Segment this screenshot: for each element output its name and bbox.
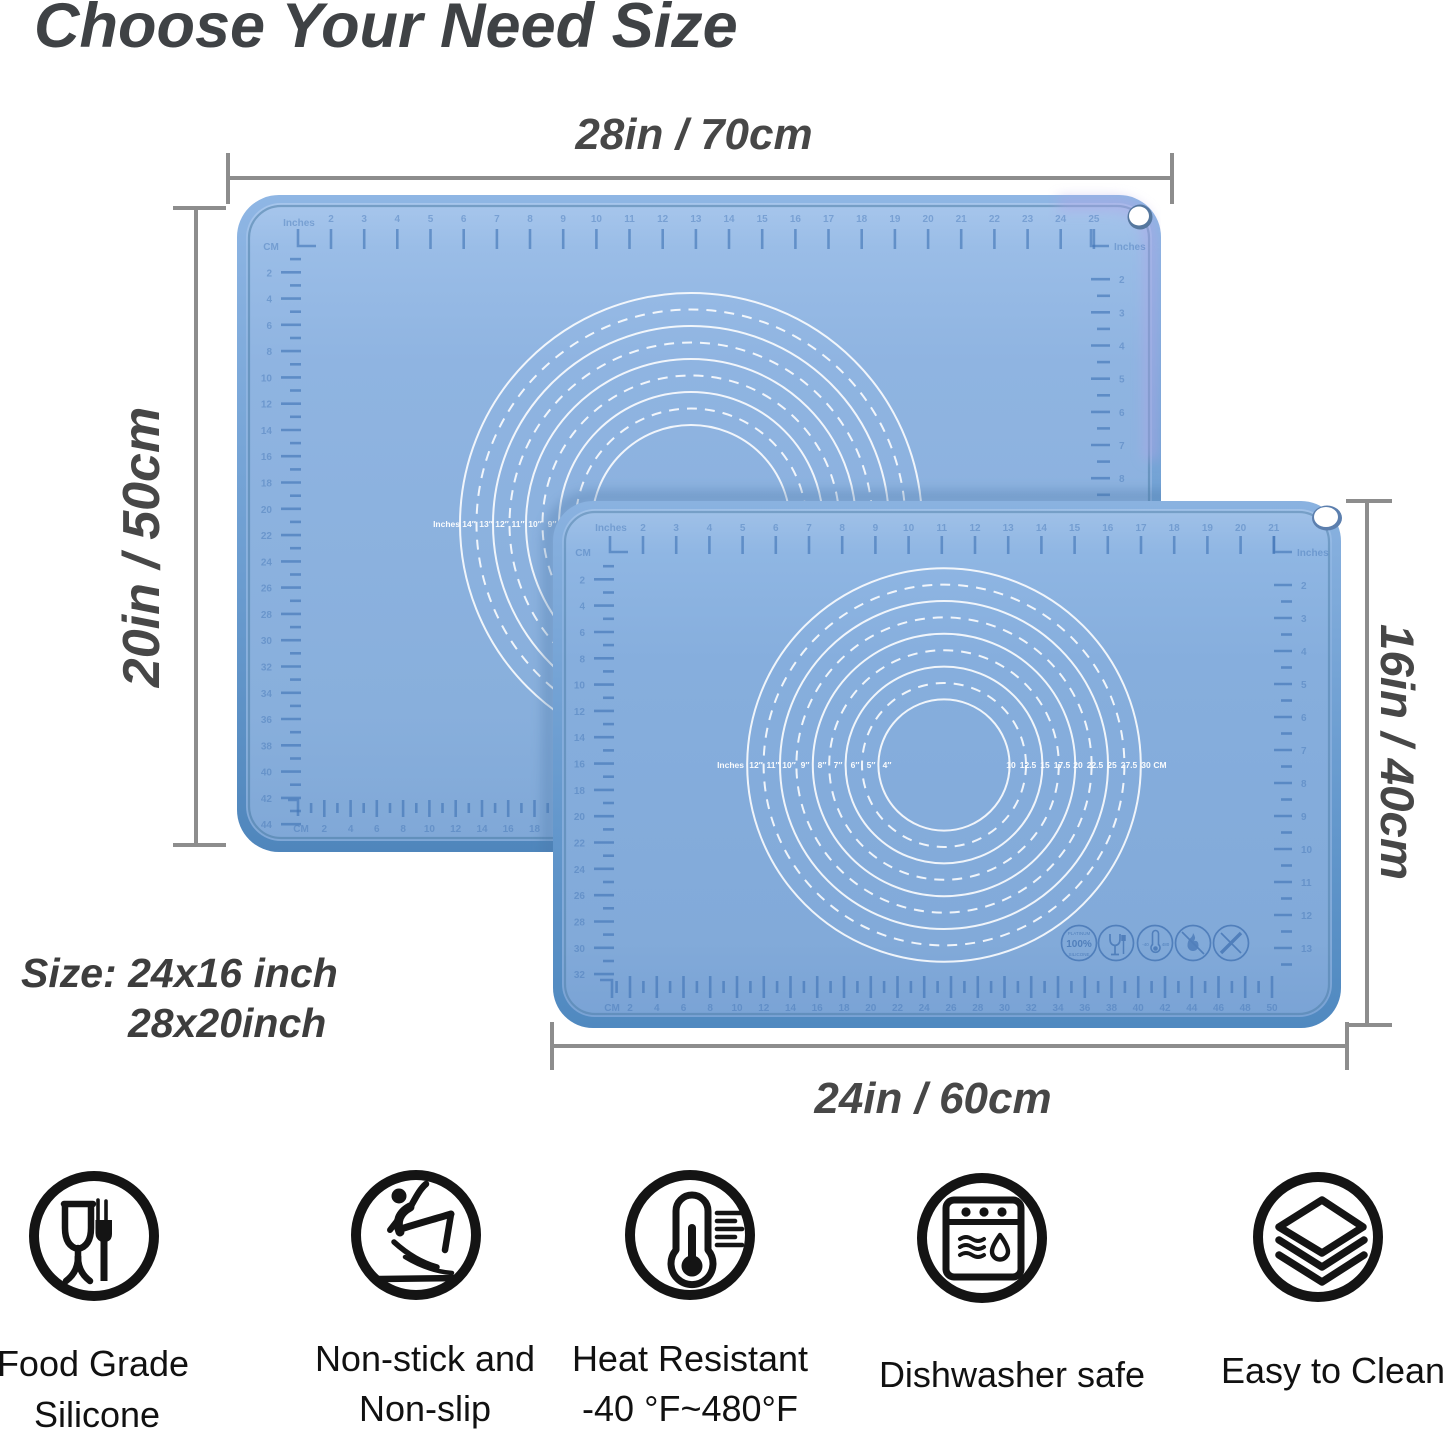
svg-text:5: 5 [428, 214, 434, 225]
svg-text:16: 16 [1102, 523, 1114, 534]
svg-text:Inches: Inches [283, 218, 315, 229]
svg-text:24: 24 [919, 1003, 931, 1014]
svg-text:16: 16 [812, 1003, 824, 1014]
svg-text:10″: 10″ [782, 760, 796, 770]
svg-text:12: 12 [574, 707, 586, 718]
svg-text:11: 11 [937, 523, 948, 534]
svg-text:2: 2 [322, 824, 328, 835]
svg-text:23: 23 [1022, 214, 1034, 225]
svg-text:4: 4 [1119, 342, 1125, 353]
svg-text:8: 8 [707, 1003, 713, 1014]
svg-text:10″: 10″ [528, 519, 542, 529]
svg-text:22.5: 22.5 [1087, 760, 1104, 770]
svg-text:26: 26 [574, 891, 586, 902]
svg-text:16: 16 [261, 452, 273, 463]
svg-text:28in / 70cm: 28in / 70cm [574, 110, 812, 159]
svg-text:18: 18 [261, 479, 273, 490]
svg-text:12″: 12″ [495, 519, 509, 529]
svg-text:8″: 8″ [818, 760, 827, 770]
svg-text:7: 7 [806, 523, 812, 534]
svg-text:22: 22 [574, 839, 586, 850]
svg-text:18: 18 [856, 214, 868, 225]
svg-text:16: 16 [790, 214, 802, 225]
svg-text:4: 4 [579, 602, 585, 613]
svg-text:2: 2 [328, 214, 334, 225]
svg-text:3: 3 [673, 523, 679, 534]
svg-text:12″: 12″ [749, 760, 763, 770]
svg-text:38: 38 [261, 741, 273, 752]
svg-text:100%: 100% [1066, 939, 1092, 950]
svg-text:12: 12 [969, 523, 981, 534]
svg-text:7: 7 [1119, 441, 1125, 452]
svg-text:25: 25 [1088, 214, 1100, 225]
svg-text:30: 30 [261, 636, 273, 647]
svg-text:15: 15 [757, 214, 769, 225]
svg-text:CM: CM [575, 548, 591, 559]
svg-text:20: 20 [1073, 760, 1083, 770]
svg-text:22: 22 [261, 531, 273, 542]
svg-text:13: 13 [690, 214, 702, 225]
svg-text:2: 2 [1119, 275, 1125, 286]
svg-text:44: 44 [1186, 1003, 1198, 1014]
svg-text:6: 6 [579, 628, 585, 639]
svg-text:6: 6 [1119, 408, 1125, 419]
svg-text:10: 10 [424, 824, 436, 835]
svg-text:36: 36 [261, 715, 273, 726]
svg-text:16in / 40cm: 16in / 40cm [1370, 624, 1423, 880]
svg-text:6: 6 [773, 523, 779, 534]
svg-text:19: 19 [889, 214, 901, 225]
svg-text:48: 48 [1240, 1003, 1252, 1014]
svg-text:12: 12 [1301, 911, 1313, 922]
svg-text:12: 12 [758, 1003, 770, 1014]
svg-text:6: 6 [1301, 713, 1307, 724]
svg-text:14: 14 [1036, 523, 1048, 534]
svg-text:6: 6 [681, 1003, 687, 1014]
svg-text:17.5: 17.5 [1054, 760, 1071, 770]
svg-text:14: 14 [785, 1003, 797, 1014]
svg-text:7: 7 [1301, 746, 1307, 757]
svg-text:11″: 11″ [511, 519, 524, 529]
svg-text:24: 24 [261, 557, 273, 568]
svg-text:3: 3 [1301, 614, 1307, 625]
svg-text:SILICONE: SILICONE [1068, 952, 1089, 957]
svg-text:34: 34 [261, 689, 273, 700]
svg-text:Size: 24x16 inch: Size: 24x16 inch [21, 950, 338, 996]
svg-text:32: 32 [1026, 1003, 1038, 1014]
svg-text:8: 8 [579, 654, 585, 665]
svg-text:Non-stick and: Non-stick and [315, 1338, 535, 1379]
svg-text:8: 8 [527, 214, 533, 225]
svg-text:10: 10 [903, 523, 915, 534]
svg-text:2: 2 [266, 268, 272, 279]
svg-text:34: 34 [1052, 1003, 1064, 1014]
svg-text:Heat Resistant: Heat Resistant [572, 1338, 808, 1379]
svg-text:8: 8 [400, 824, 406, 835]
svg-text:10: 10 [1006, 760, 1016, 770]
svg-text:11″: 11″ [766, 760, 779, 770]
svg-text:21: 21 [1268, 523, 1280, 534]
svg-text:13: 13 [1003, 523, 1015, 534]
svg-text:10: 10 [1301, 845, 1313, 856]
svg-text:20: 20 [574, 812, 586, 823]
svg-text:5: 5 [1119, 375, 1125, 386]
svg-text:36: 36 [1079, 1003, 1091, 1014]
svg-text:46: 46 [1213, 1003, 1225, 1014]
svg-text:40: 40 [261, 768, 273, 779]
svg-text:6″: 6″ [851, 760, 860, 770]
svg-text:28: 28 [972, 1003, 984, 1014]
svg-text:9: 9 [1301, 812, 1307, 823]
svg-text:26: 26 [945, 1003, 957, 1014]
svg-text:CM: CM [604, 1003, 620, 1014]
svg-text:7: 7 [494, 214, 500, 225]
svg-text:27.5: 27.5 [1121, 760, 1138, 770]
svg-text:6: 6 [374, 824, 380, 835]
svg-text:Dishwasher safe: Dishwasher safe [879, 1354, 1145, 1395]
svg-text:3: 3 [1119, 308, 1125, 319]
svg-text:8: 8 [839, 523, 845, 534]
svg-text:42: 42 [261, 794, 273, 805]
svg-text:14: 14 [574, 733, 586, 744]
svg-text:4: 4 [266, 295, 272, 306]
svg-text:6: 6 [266, 321, 272, 332]
svg-text:12: 12 [657, 214, 669, 225]
svg-text:Choose Your Need Size: Choose Your Need Size [34, 0, 738, 61]
svg-text:38: 38 [1106, 1003, 1118, 1014]
svg-text:13: 13 [1301, 944, 1313, 955]
svg-text:Inches: Inches [717, 760, 744, 770]
svg-text:5: 5 [1301, 680, 1307, 691]
svg-text:Inches: Inches [595, 523, 627, 534]
svg-text:20in / 50cm: 20in / 50cm [113, 407, 171, 688]
svg-text:22: 22 [892, 1003, 904, 1014]
svg-text:9″: 9″ [801, 760, 810, 770]
svg-text:24: 24 [1055, 214, 1067, 225]
svg-text:Non-slip: Non-slip [359, 1388, 491, 1429]
svg-text:3: 3 [361, 214, 367, 225]
svg-text:CM: CM [263, 242, 279, 253]
svg-text:12: 12 [450, 824, 462, 835]
svg-text:8: 8 [266, 347, 272, 358]
svg-text:-40 °F~480°F: -40 °F~480°F [582, 1388, 798, 1429]
svg-text:4: 4 [348, 824, 354, 835]
svg-text:8: 8 [1301, 779, 1307, 790]
svg-text:30: 30 [574, 944, 586, 955]
svg-text:5: 5 [740, 523, 746, 534]
svg-text:30: 30 [1141, 760, 1151, 770]
svg-text:15: 15 [1069, 523, 1081, 534]
svg-text:4: 4 [1301, 647, 1307, 658]
svg-text:7″: 7″ [834, 760, 843, 770]
svg-text:11: 11 [1301, 878, 1312, 889]
svg-text:30: 30 [999, 1003, 1011, 1014]
svg-text:13″: 13″ [479, 519, 493, 529]
svg-text:19: 19 [1202, 523, 1214, 534]
svg-text:21: 21 [956, 214, 968, 225]
svg-text:25: 25 [1107, 760, 1117, 770]
svg-text:22: 22 [989, 214, 1001, 225]
svg-text:5″: 5″ [867, 760, 876, 770]
svg-text:9: 9 [873, 523, 879, 534]
svg-text:18: 18 [574, 786, 586, 797]
svg-text:Food Grade: Food Grade [0, 1343, 189, 1384]
svg-text:42: 42 [1159, 1003, 1171, 1014]
svg-text:4: 4 [395, 214, 401, 225]
svg-text:44: 44 [261, 820, 273, 831]
svg-text:2: 2 [1301, 581, 1307, 592]
svg-text:16: 16 [574, 760, 586, 771]
svg-text:20: 20 [923, 214, 935, 225]
svg-text:20: 20 [1235, 523, 1247, 534]
svg-text:11: 11 [624, 214, 635, 225]
svg-text:20: 20 [865, 1003, 877, 1014]
svg-text:CM: CM [293, 824, 309, 835]
svg-text:PLATINUM: PLATINUM [1068, 931, 1091, 936]
svg-text:Silicone: Silicone [34, 1394, 160, 1431]
svg-text:Inches: Inches [433, 519, 460, 529]
svg-text:2: 2 [627, 1003, 633, 1014]
svg-text:-40: -40 [1142, 942, 1149, 947]
svg-text:17: 17 [1135, 523, 1147, 534]
svg-text:Inches: Inches [1114, 242, 1146, 253]
svg-text:9: 9 [560, 214, 566, 225]
svg-text:4″: 4″ [883, 760, 892, 770]
svg-text:480: 480 [1162, 942, 1170, 947]
svg-text:20: 20 [261, 505, 273, 516]
svg-text:18: 18 [838, 1003, 850, 1014]
svg-text:40: 40 [1133, 1003, 1145, 1014]
svg-text:14″: 14″ [462, 519, 476, 529]
svg-text:24: 24 [574, 865, 586, 876]
svg-text:10: 10 [261, 373, 273, 384]
svg-text:18: 18 [1169, 523, 1181, 534]
svg-text:10: 10 [574, 681, 586, 692]
svg-text:15: 15 [1040, 760, 1050, 770]
svg-text:14: 14 [723, 214, 735, 225]
svg-text:6: 6 [461, 214, 467, 225]
svg-text:17: 17 [823, 214, 835, 225]
svg-text:18: 18 [529, 824, 541, 835]
svg-text:8: 8 [1119, 474, 1125, 485]
svg-text:4: 4 [654, 1003, 660, 1014]
svg-text:14: 14 [476, 824, 488, 835]
svg-text:10: 10 [731, 1003, 743, 1014]
svg-text:16: 16 [503, 824, 515, 835]
svg-text:28: 28 [574, 918, 586, 929]
svg-text:CM: CM [1153, 760, 1166, 770]
svg-text:24in / 60cm: 24in / 60cm [813, 1074, 1051, 1123]
svg-text:14: 14 [261, 426, 273, 437]
svg-text:50: 50 [1266, 1003, 1278, 1014]
svg-text:10: 10 [591, 214, 603, 225]
svg-text:28: 28 [261, 610, 273, 621]
svg-text:32: 32 [261, 663, 273, 674]
svg-text:28x20inch: 28x20inch [127, 1000, 326, 1046]
svg-text:2: 2 [579, 575, 585, 586]
svg-text:Easy to Clean: Easy to Clean [1221, 1350, 1445, 1391]
svg-text:26: 26 [261, 584, 273, 595]
svg-text:Inches: Inches [1297, 548, 1329, 559]
svg-text:12: 12 [261, 400, 273, 411]
svg-text:32: 32 [574, 970, 586, 981]
svg-text:4: 4 [707, 523, 713, 534]
svg-text:12.5: 12.5 [1020, 760, 1037, 770]
svg-text:2: 2 [640, 523, 646, 534]
